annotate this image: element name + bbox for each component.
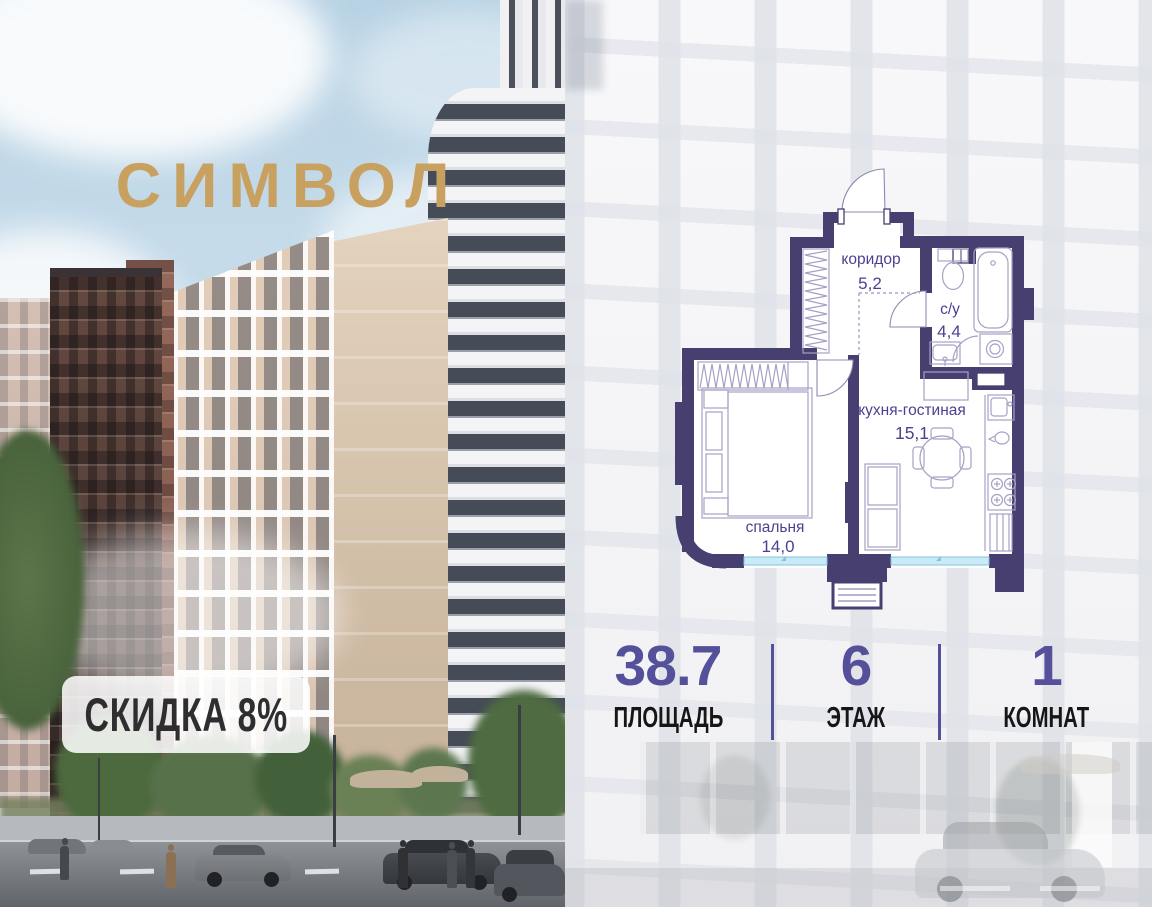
floor-plan: коридор 5,2 с/у 4,4 кухня-гостиная 15,1 … bbox=[672, 148, 1052, 628]
stat-area: 38.7 ПЛОЩАДЬ bbox=[565, 636, 771, 754]
lane-marking bbox=[305, 869, 339, 875]
faded-umbrella bbox=[1020, 754, 1120, 774]
light-pole bbox=[98, 758, 100, 844]
cloud bbox=[0, 0, 330, 160]
room-area-bathroom: 4,4 bbox=[937, 322, 961, 341]
stat-area-value: 38.7 bbox=[615, 636, 722, 698]
car bbox=[195, 845, 291, 887]
stat-rooms: 1 КОМНАТ bbox=[941, 636, 1152, 754]
pedestrian bbox=[466, 848, 475, 888]
faded-lane-marking bbox=[1040, 886, 1100, 891]
entry-door-swing bbox=[842, 169, 885, 212]
car bbox=[28, 836, 86, 860]
lane-marking bbox=[120, 869, 154, 875]
listing-card[interactable]: СИМВОЛ СКИДКА 8% bbox=[0, 0, 1152, 907]
pedestrian bbox=[60, 846, 69, 880]
apartment-stats: 38.7 ПЛОЩАДЬ 6 ЭТАЖ 1 КОМНАТ bbox=[565, 636, 1152, 754]
stat-floor-label: ЭТАЖ bbox=[814, 702, 898, 735]
brand-logo: СИМВОЛ bbox=[0, 150, 565, 222]
building-graphic bbox=[328, 218, 448, 828]
room-area-corridor: 5,2 bbox=[858, 274, 882, 293]
pedestrian bbox=[447, 850, 457, 888]
pedestrian bbox=[166, 852, 176, 888]
light-pole bbox=[333, 735, 336, 847]
building-photo: СИМВОЛ СКИДКА 8% bbox=[0, 0, 565, 907]
car bbox=[92, 838, 134, 858]
apartment-panel: коридор 5,2 с/у 4,4 кухня-гостиная 15,1 … bbox=[565, 0, 1152, 907]
faded-tree bbox=[700, 755, 770, 840]
discount-badge-label: СКИДКА 8% bbox=[84, 687, 287, 742]
faded-lane-marking bbox=[940, 886, 1010, 891]
stat-rooms-value: 1 bbox=[1031, 636, 1062, 698]
room-label-bathroom: с/у bbox=[940, 301, 960, 318]
room-label-corridor: коридор bbox=[841, 251, 900, 268]
stat-floor-value: 6 bbox=[841, 636, 872, 698]
light-pole bbox=[518, 705, 521, 835]
lane-marking bbox=[30, 869, 64, 875]
room-label-kitchen-living: кухня-гостиная bbox=[858, 402, 966, 419]
room-area-bedroom: 14,0 bbox=[761, 537, 794, 556]
room-area-kitchen-living: 15,1 bbox=[895, 423, 929, 443]
cafe-umbrella bbox=[412, 766, 468, 782]
pedestrian bbox=[398, 848, 408, 888]
room-label-bedroom: спальня bbox=[746, 519, 805, 536]
faded-building-corner bbox=[565, 0, 603, 90]
discount-badge: СКИДКА 8% bbox=[62, 676, 310, 753]
stat-floor: 6 ЭТАЖ bbox=[774, 636, 938, 754]
stat-rooms-label: КОМНАТ bbox=[985, 702, 1108, 735]
car bbox=[494, 850, 565, 902]
stat-area-label: ПЛОЩАДЬ bbox=[590, 702, 747, 735]
ac-unit-symbol bbox=[833, 582, 881, 608]
